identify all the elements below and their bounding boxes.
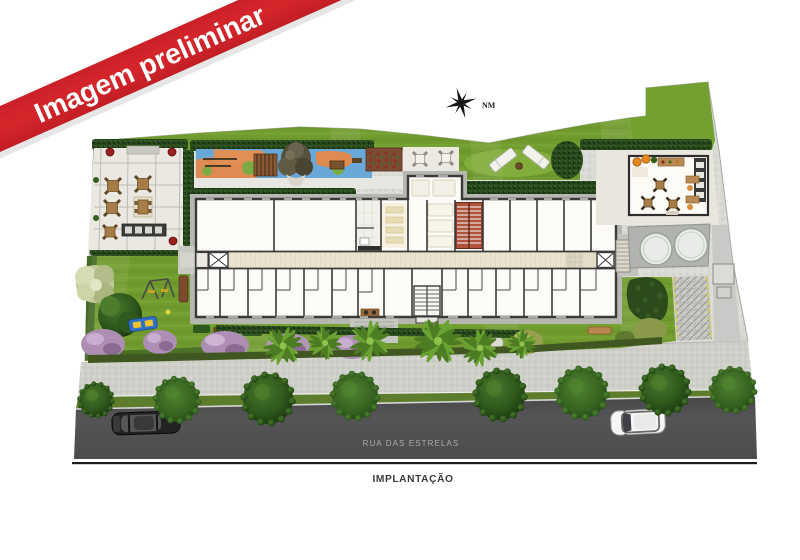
svg-text:IMPLANTAÇÃO: IMPLANTAÇÃO <box>372 472 453 485</box>
svg-text:RUA DAS ESTRELAS: RUA DAS ESTRELAS <box>363 439 460 448</box>
svg-text:NM: NM <box>482 101 496 110</box>
